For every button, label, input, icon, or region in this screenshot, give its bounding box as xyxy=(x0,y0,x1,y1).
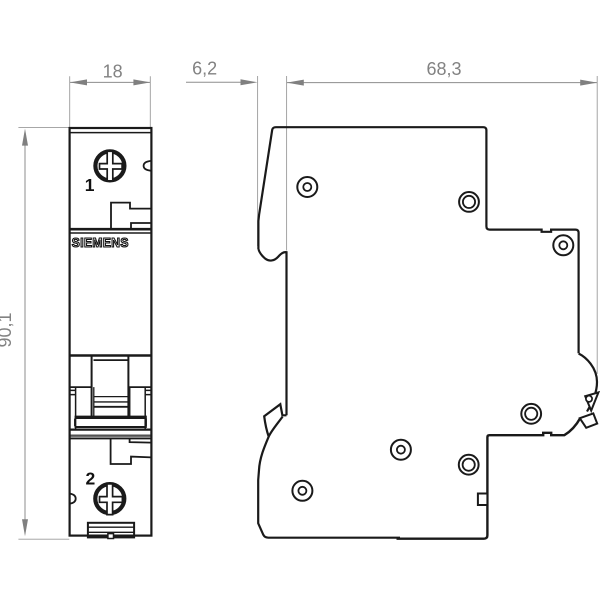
svg-text:1: 1 xyxy=(85,175,95,195)
svg-text:6,2: 6,2 xyxy=(192,58,217,78)
svg-text:SIEMENS: SIEMENS xyxy=(72,236,129,250)
svg-text:90,1: 90,1 xyxy=(0,312,15,347)
svg-text:2: 2 xyxy=(86,469,96,489)
svg-text:18: 18 xyxy=(103,62,123,82)
svg-text:68,3: 68,3 xyxy=(426,59,461,79)
